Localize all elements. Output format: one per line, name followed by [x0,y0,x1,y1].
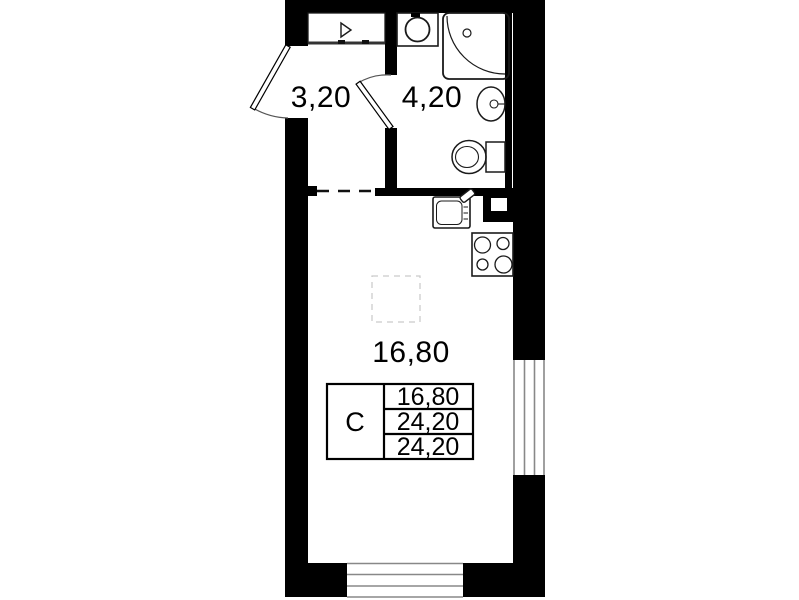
hall-area-label: 3,20 [291,81,351,114]
shower-icon [443,13,509,79]
apartment-type-label: С [345,407,365,437]
stove-icon [472,233,513,276]
toilet-tank [486,142,505,172]
entrance-door [250,45,290,118]
wall-bottom-left [285,563,347,597]
floor-plan-canvas: 3,20 4,20 16,80 С 16,80 24,20 24,20 [0,0,799,600]
wall-dash-nub [308,186,317,196]
shower-drain [463,29,471,37]
legend-row-value: 24,20 [397,408,460,436]
bathroom-door [356,75,393,130]
washing-machine-icon [397,13,438,46]
kitchen-sink-basin [437,201,463,225]
shower-curve [447,16,505,74]
closet-hinge-mark [338,40,345,44]
ghost-furniture-outline [372,276,420,322]
bathroom-area-label: 4,20 [402,81,462,114]
washer-drum [406,18,430,42]
legend-table: С 16,80 24,20 24,20 [327,383,473,461]
toilet-bowl-inner [456,147,479,168]
wall-hall-bath-upper [385,13,397,75]
closet-hinge-mark [362,40,369,44]
window-bottom [347,564,463,598]
washer-panel [411,13,420,17]
door-leaf [250,45,290,110]
living-area-label: 16,80 [372,336,450,369]
wall-bath-bottom-band [375,188,515,196]
toilet-icon [452,141,505,174]
wall-top [285,0,545,13]
window-right [514,360,544,475]
closet-icon [308,13,385,44]
wall-hall-bath-lower [385,128,397,190]
door-swing-arc [253,108,288,118]
burner [495,256,512,273]
vent-shaft-opening [491,198,507,211]
shower-tray [443,13,509,79]
sink-tap [490,100,498,108]
legend-row-value: 24,20 [397,433,460,461]
floor-plan-drawing: 3,20 4,20 16,80 С 16,80 24,20 24,20 [0,0,799,600]
burner [497,238,509,250]
door-swing-arc [358,75,391,83]
burner [475,237,491,253]
burner [477,259,488,270]
wall-left-upper [285,0,308,46]
wall-left-main [285,118,308,563]
legend-row-value: 16,80 [397,383,460,411]
wall-right-upper [513,0,545,360]
toilet-bowl [452,141,486,174]
wall-right-lower [513,475,545,597]
door-leaf [356,81,393,129]
bath-sink-icon [477,87,505,121]
